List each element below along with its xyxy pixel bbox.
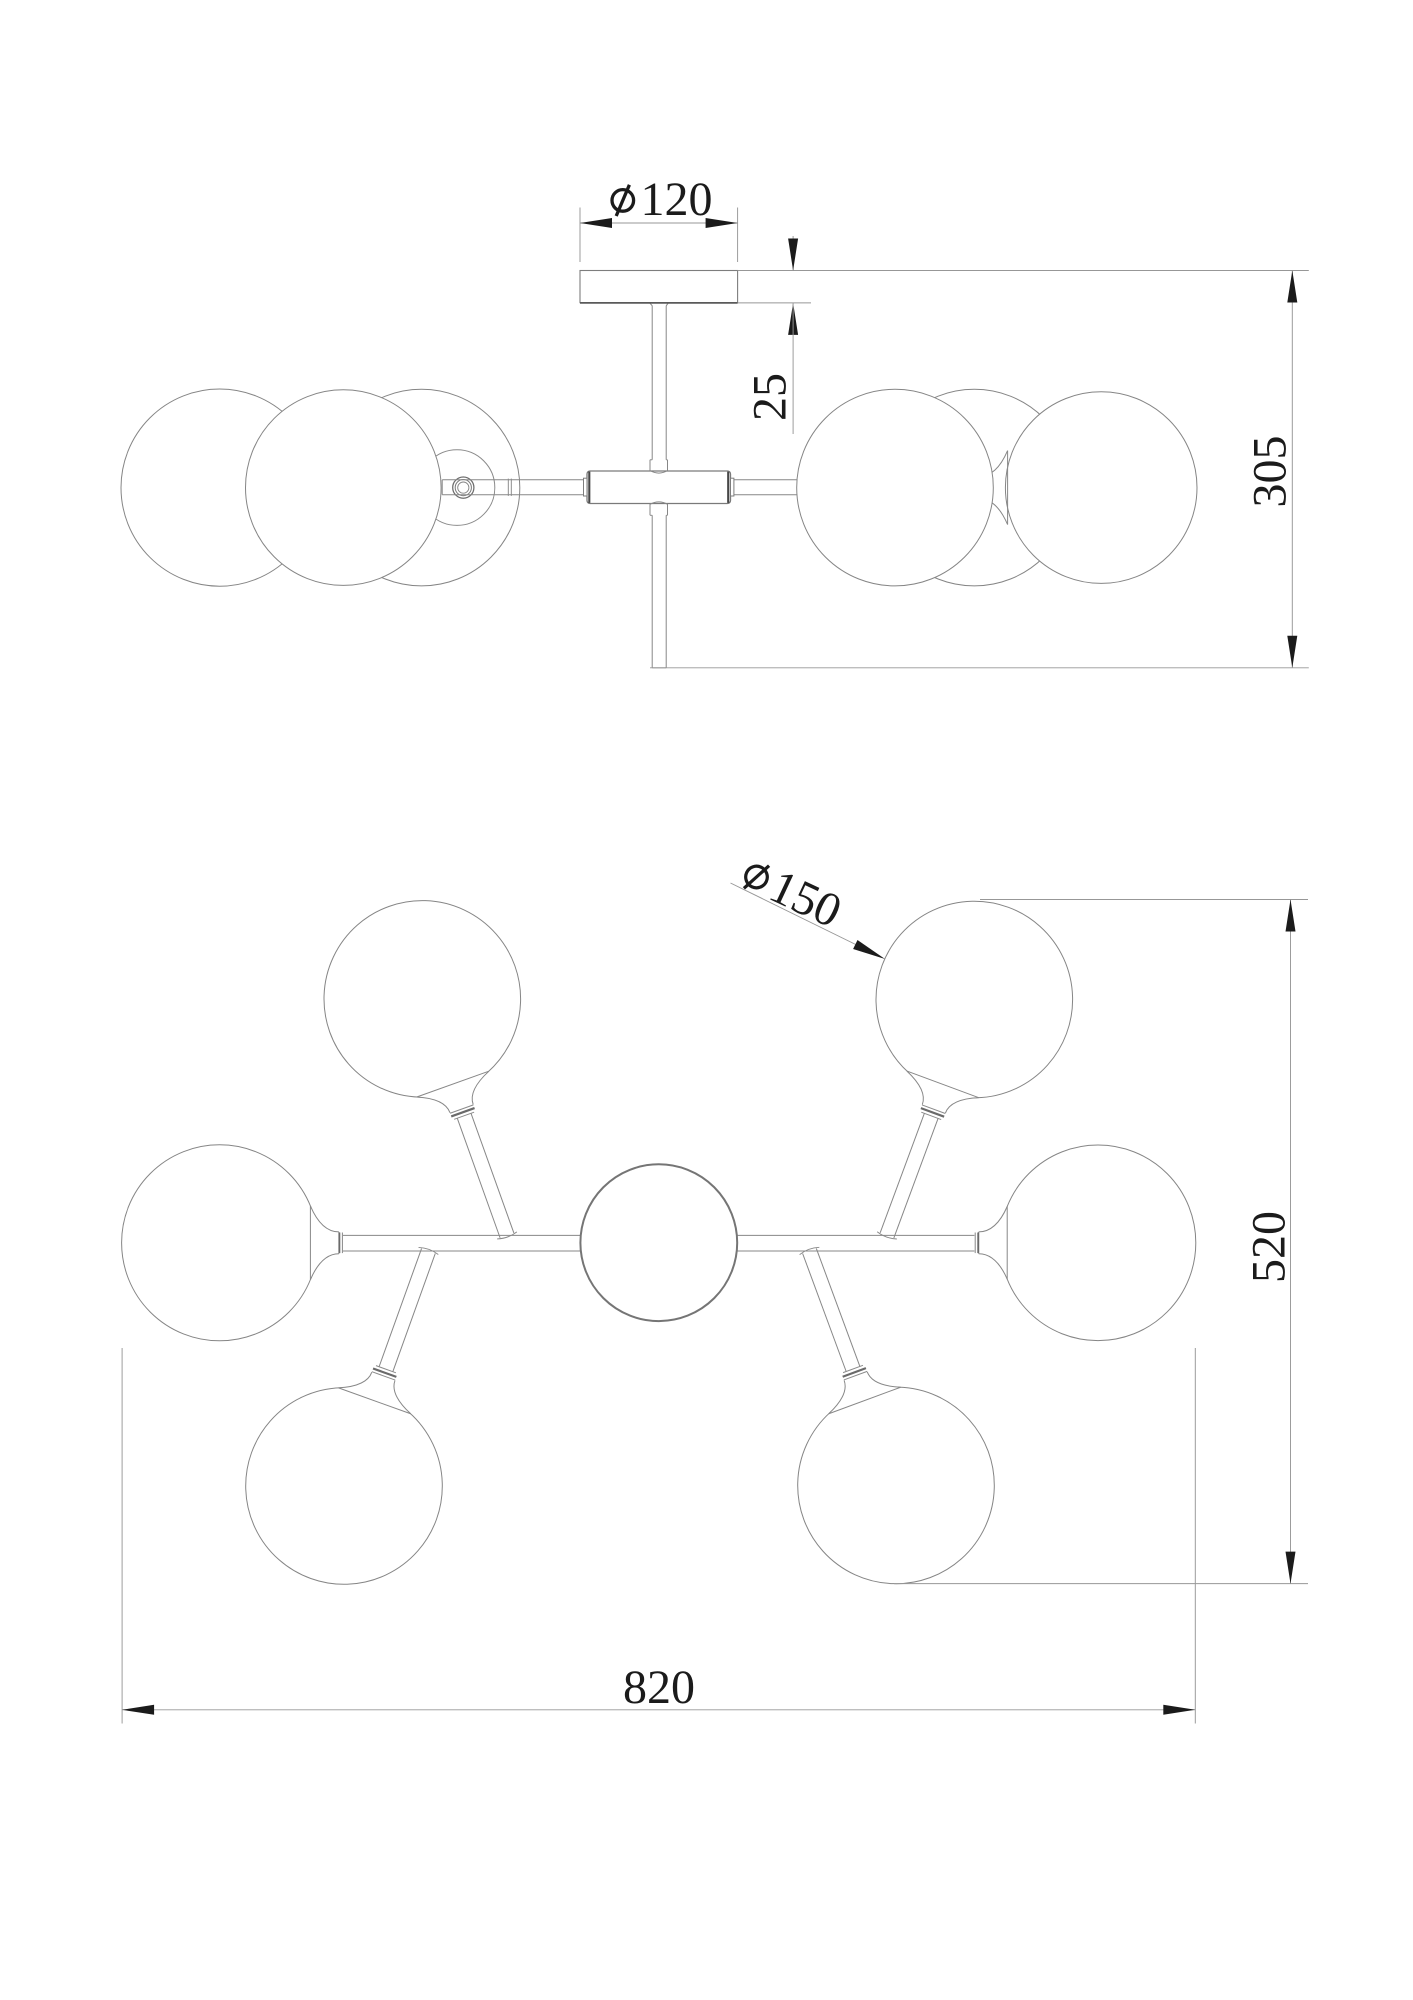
svg-text:520: 520 [1243, 1211, 1296, 1283]
svg-text:305: 305 [1244, 436, 1297, 508]
svg-text:820: 820 [623, 1661, 695, 1714]
svg-text:120: 120 [641, 173, 713, 226]
svg-text:25: 25 [744, 373, 797, 421]
